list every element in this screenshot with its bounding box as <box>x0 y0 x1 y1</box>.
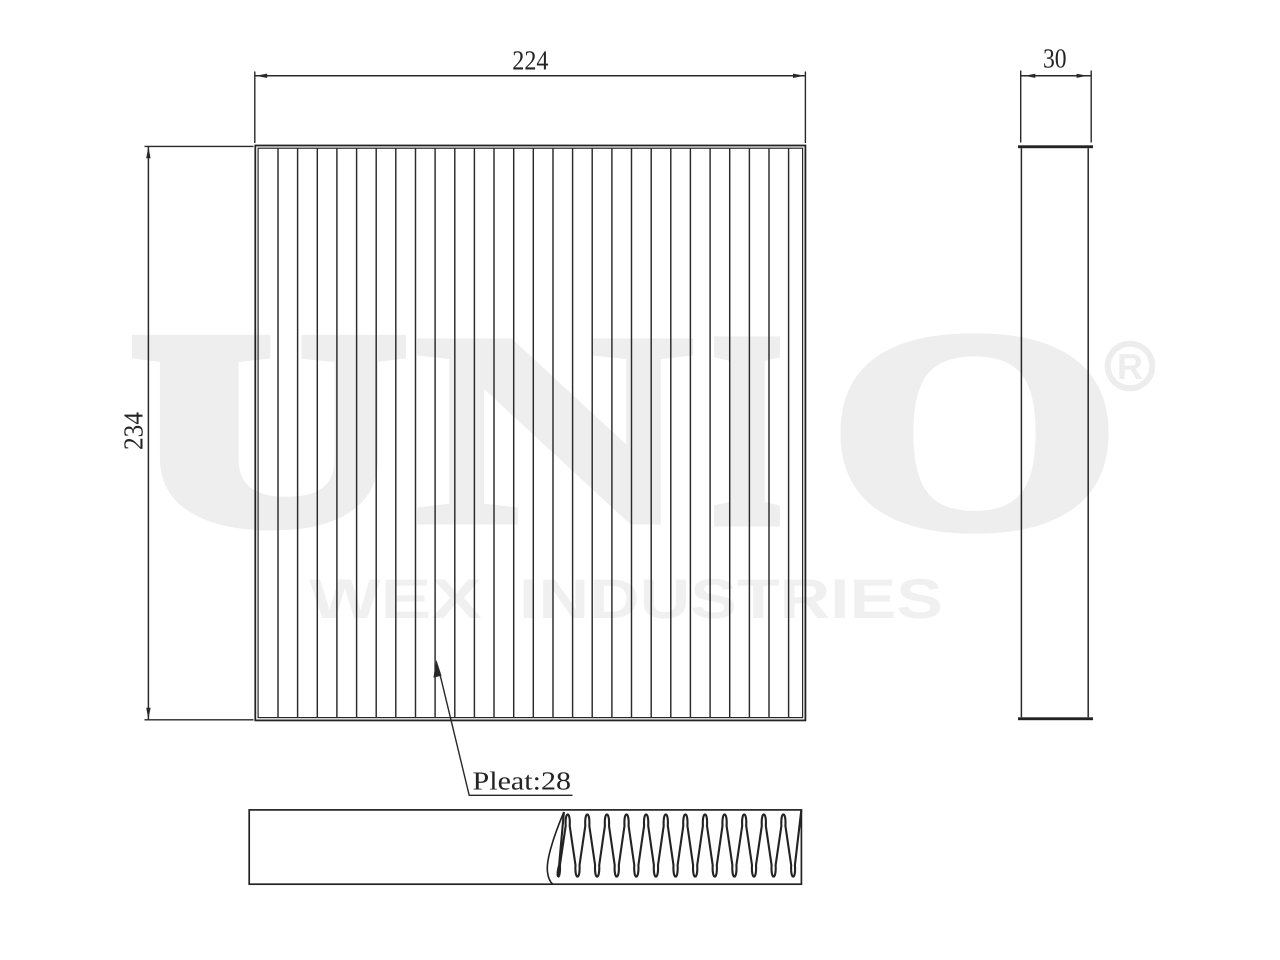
svg-text:I: I <box>712 279 782 580</box>
svg-text:U: U <box>133 279 405 580</box>
svg-text:234: 234 <box>118 412 149 450</box>
svg-text:Pleat:28: Pleat:28 <box>473 766 572 795</box>
svg-text:R: R <box>1117 346 1143 387</box>
svg-text:O: O <box>828 273 1121 589</box>
svg-text:INDUSTRIES: INDUSTRIES <box>519 567 943 630</box>
svg-text:30: 30 <box>1043 43 1067 74</box>
svg-text:224: 224 <box>512 44 548 75</box>
